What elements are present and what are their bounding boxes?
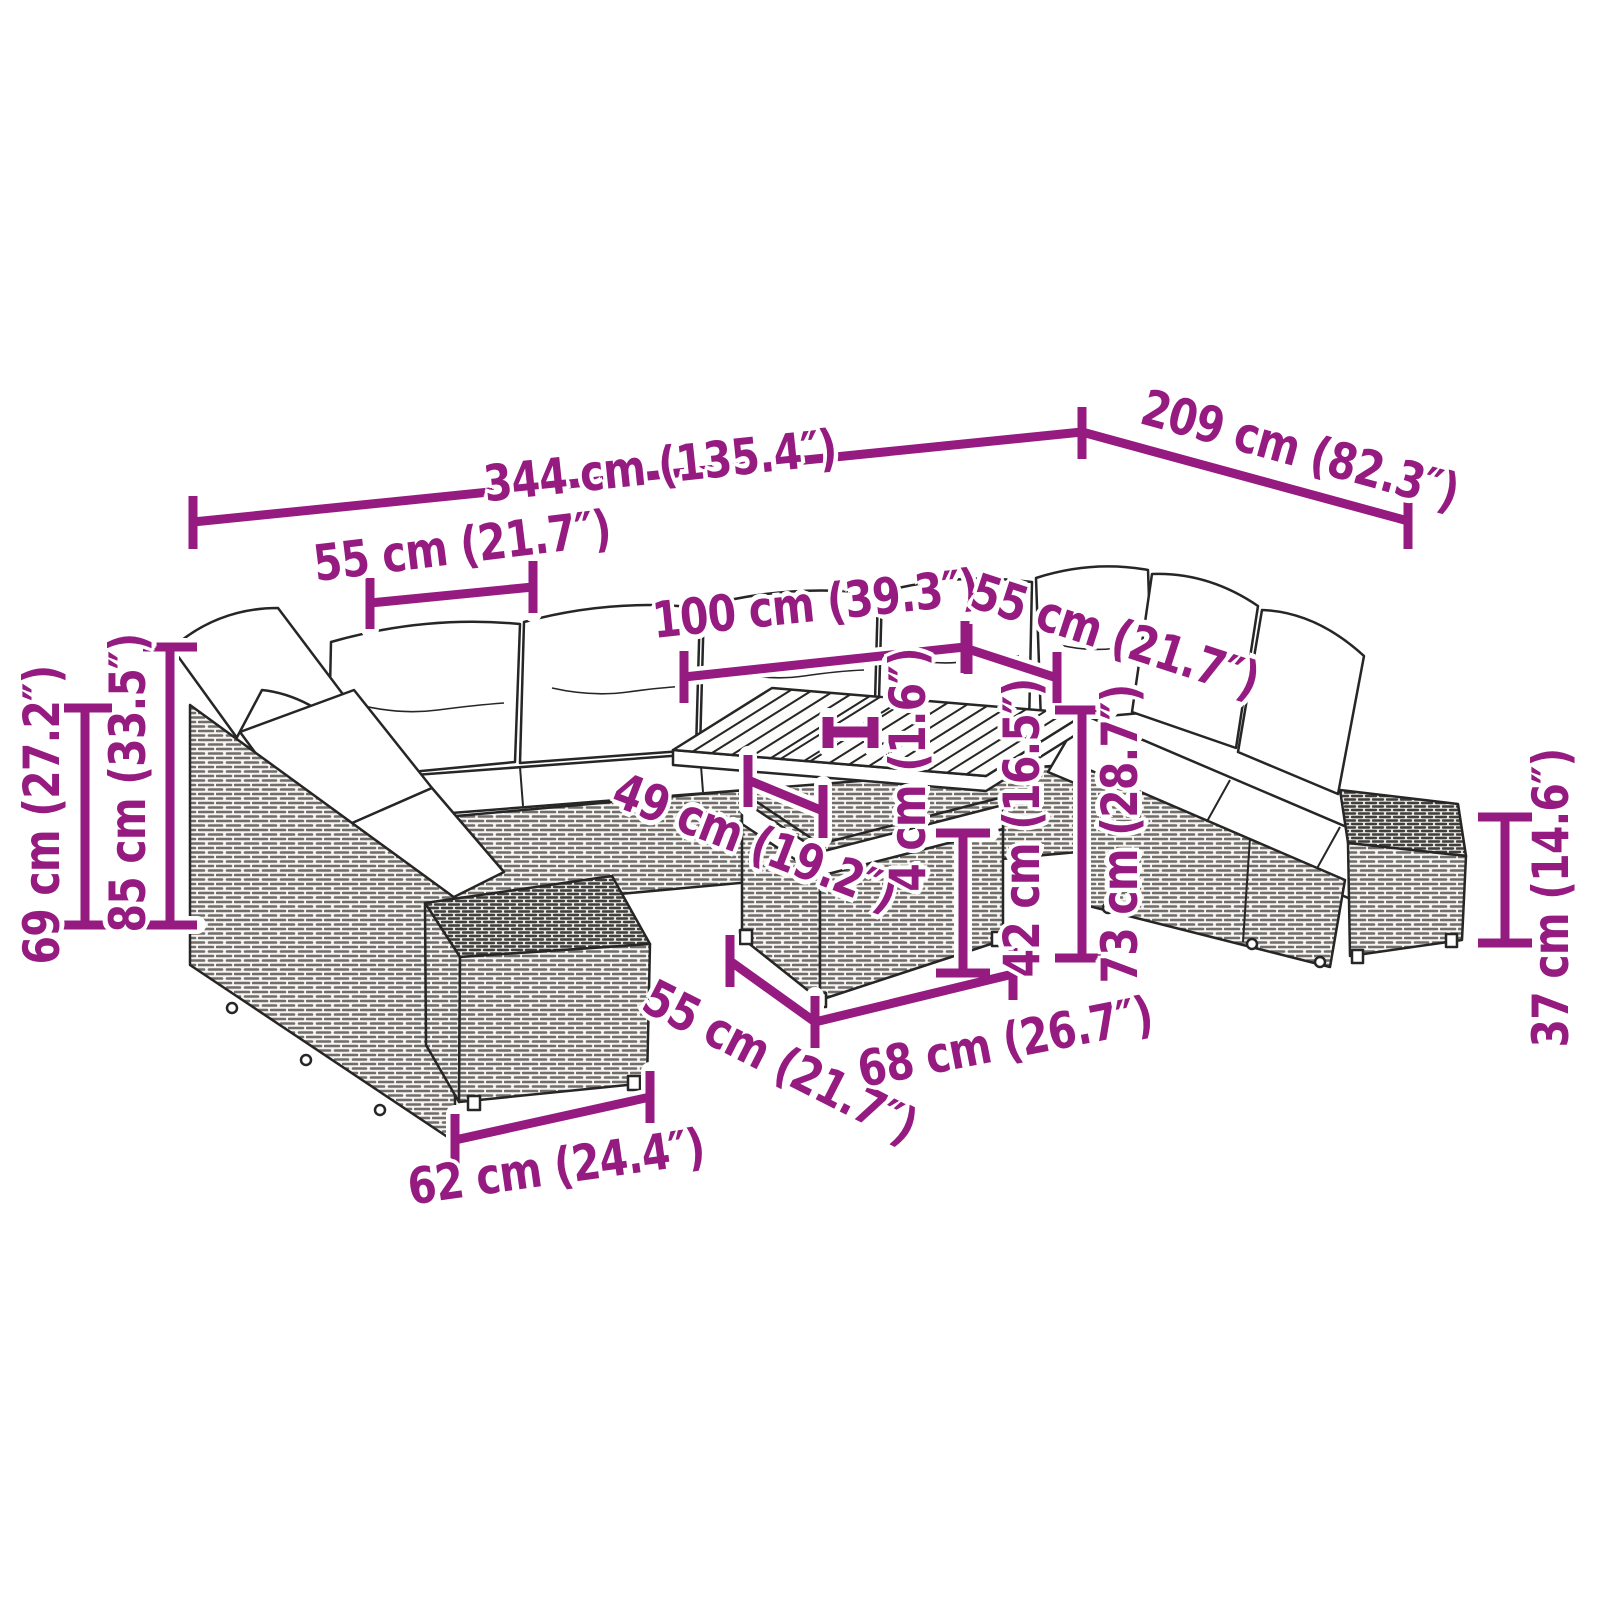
product-dimension-diagram: 344 cm (135.4″) 209 cm (82.3″) 55 cm (21… [0,0,1600,1600]
dim-label-backrest-height: 69 cm (27.2″) [17,666,67,965]
dim-label-table-height: 73 cm (28.7″) [1095,685,1145,984]
right-ottoman [1340,790,1466,963]
dim-label-ottoman-height: 37 cm (14.6″) [1526,749,1576,1048]
left-ottoman [425,876,650,1110]
dim-label-table-base-height: 42 cm (16.5″) [997,679,1047,978]
dim-label-total-height: 85 cm (33.5″) [103,634,153,933]
line-art-canvas [0,0,1600,1600]
dim-label-tabletop-thickness: 4 cm (1.6″) [883,648,933,892]
